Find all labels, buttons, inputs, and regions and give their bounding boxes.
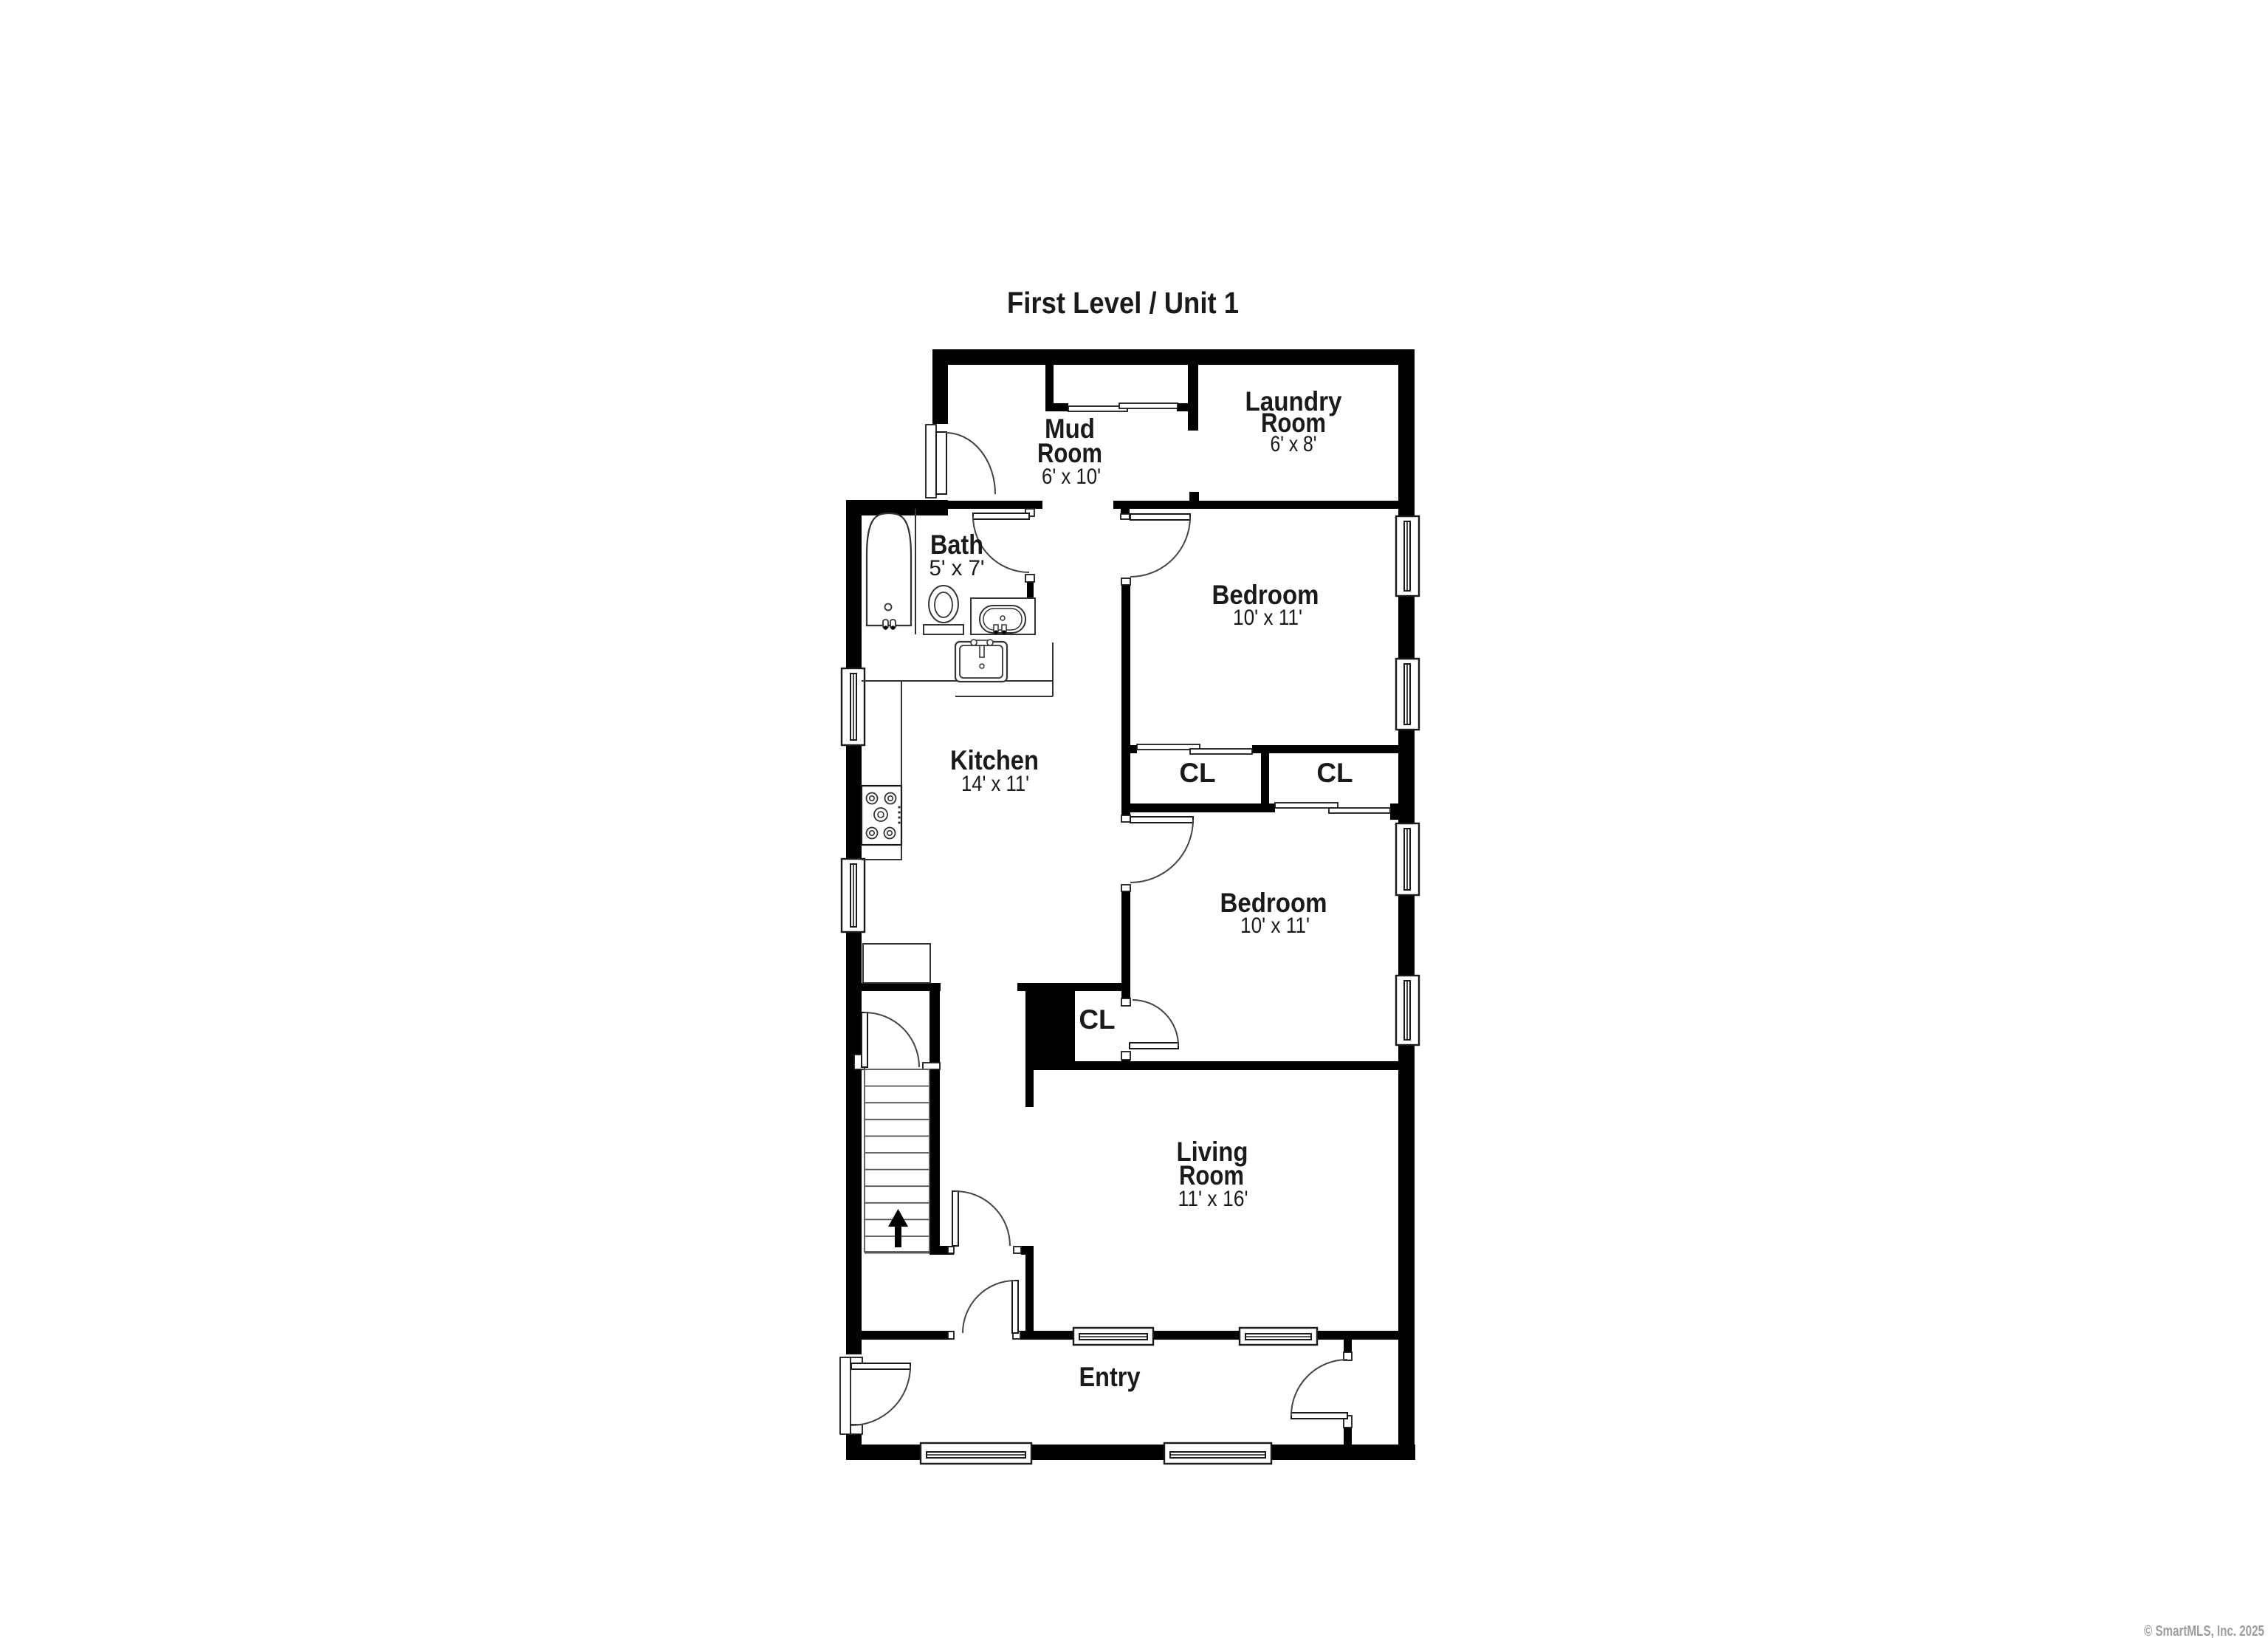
svg-text:Room: Room — [1037, 438, 1102, 468]
svg-text:11' x 16': 11' x 16' — [1178, 1187, 1248, 1211]
svg-text:Kitchen: Kitchen — [950, 745, 1039, 775]
svg-text:10' x 11': 10' x 11' — [1233, 606, 1302, 630]
svg-text:© SmartMLS, Inc. 2025: © SmartMLS, Inc. 2025 — [2144, 1623, 2264, 1638]
svg-text:CL: CL — [1179, 758, 1215, 788]
svg-text:Bath: Bath — [930, 530, 983, 560]
svg-text:CL: CL — [1079, 1004, 1115, 1035]
svg-text:10' x 11': 10' x 11' — [1240, 914, 1310, 938]
svg-text:5' x 7': 5' x 7' — [929, 556, 985, 580]
svg-text:First Level / Unit 1: First Level / Unit 1 — [1007, 286, 1239, 320]
svg-text:Entry: Entry — [1079, 1362, 1141, 1392]
svg-text:6' x 8': 6' x 8' — [1271, 432, 1317, 456]
svg-text:Room: Room — [1179, 1160, 1244, 1190]
svg-text:6' x 10': 6' x 10' — [1042, 465, 1101, 489]
svg-text:14' x 11': 14' x 11' — [961, 772, 1029, 796]
svg-text:CL: CL — [1316, 758, 1353, 788]
